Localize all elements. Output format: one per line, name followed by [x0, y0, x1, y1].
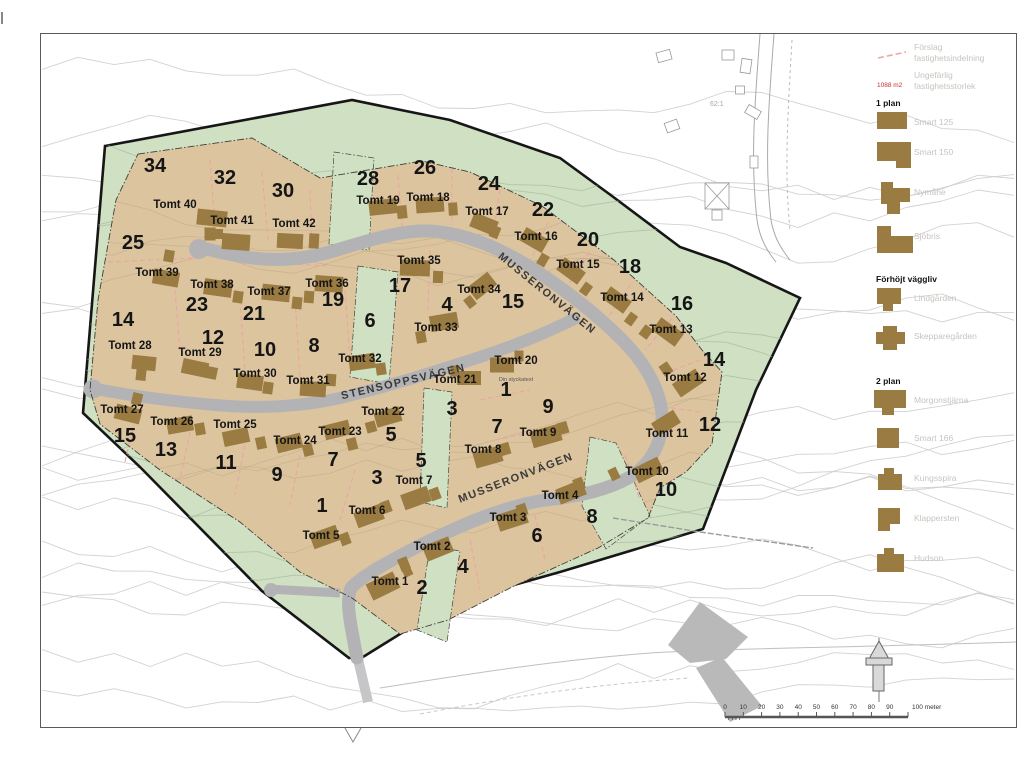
plot-label: Tomt 18 [406, 192, 450, 204]
plot-label: Tomt 19 [356, 195, 399, 207]
legend-label: Hudson [914, 553, 944, 563]
block-number: 4 [457, 556, 469, 578]
house [396, 205, 407, 219]
plot-label: Tomt 40 [153, 199, 196, 211]
plot-label: Tomt 28 [108, 340, 152, 352]
block-number: 9 [542, 396, 553, 418]
house [232, 290, 244, 303]
legend-label: Morgonstjärna [914, 395, 969, 405]
block-number: 7 [327, 449, 338, 471]
existing-building [750, 156, 758, 168]
block-number: 19 [322, 289, 344, 311]
existing-building-x [705, 183, 729, 209]
block-number: 5 [415, 450, 426, 472]
house [163, 249, 175, 263]
plot-label: Tomt 3 [490, 512, 527, 524]
block-number: 20 [577, 229, 599, 251]
plot-label: Tomt 10 [625, 466, 668, 478]
plot-label: Tomt 31 [286, 375, 330, 387]
scale-tick-label: 10 [740, 704, 748, 711]
legend-label: fastighetsstorlek [914, 81, 976, 91]
plot-label: Tomt 13 [649, 324, 692, 336]
house [277, 233, 304, 249]
plot-label: Tomt 30 [233, 368, 276, 380]
plot-label: Tomt 6 [349, 505, 386, 517]
block-number: 5 [385, 424, 396, 446]
block-number: 18 [619, 256, 641, 278]
plot-label: Tomt 26 [150, 416, 193, 428]
block-number: 8 [586, 506, 597, 528]
house [304, 291, 315, 304]
road-stub-west [268, 589, 340, 593]
plot-label: Tomt 36 [305, 278, 348, 290]
block-number: 16 [671, 293, 693, 315]
existing-building [740, 58, 752, 73]
scale-tick-label: 90 [886, 704, 894, 711]
plot-label: Tomt 8 [465, 444, 502, 456]
scale-tick-label: 70 [849, 704, 857, 711]
legend-house-symbol [877, 112, 907, 129]
block-number: 12 [202, 327, 224, 349]
plot-label: Tomt 37 [247, 286, 290, 298]
legend-area-text: 1088 m2 [877, 82, 903, 89]
block-number: 12 [699, 414, 721, 436]
site-plan-drawing: 3432302826242220181625232119171514121086… [0, 0, 1024, 768]
scale-tick-label: 60 [831, 704, 839, 711]
block-number: 3 [446, 398, 457, 420]
plot-label: Tomt 38 [190, 279, 234, 291]
plot-label: Tomt 32 [338, 353, 381, 365]
plot-label: Tomt 22 [361, 406, 404, 418]
plot-label: Tomt 29 [178, 347, 221, 359]
block-number: 8 [308, 335, 319, 357]
house [309, 233, 320, 249]
plot-label: Tomt 23 [318, 426, 361, 438]
house [448, 202, 458, 216]
block-number: 15 [114, 425, 136, 447]
house [135, 369, 146, 381]
block-number: 34 [144, 155, 167, 177]
block-number: 23 [186, 294, 208, 316]
block-number: 1 [316, 495, 327, 517]
legend-section-heading: 1 plan [876, 98, 901, 108]
legend-section-heading: 2 plan [876, 376, 901, 386]
block-number: 21 [243, 303, 265, 325]
house [262, 381, 274, 394]
block-number: 32 [214, 167, 236, 189]
legend-label: Smart 150 [914, 147, 953, 157]
block-number: 10 [254, 339, 276, 361]
house [194, 422, 206, 436]
block-number: 13 [155, 439, 177, 461]
existing-building [712, 210, 722, 220]
block-number: 9 [271, 464, 282, 486]
legend-label: Ungefärlig [914, 70, 953, 80]
legend-label: fastighetsindelning [914, 53, 985, 63]
plot-label: Tomt 12 [663, 372, 706, 384]
house [131, 355, 156, 371]
legend-label: Klappersten [914, 513, 960, 523]
plot-label: Tomt 14 [600, 292, 644, 304]
block-number: 15 [502, 291, 524, 313]
existing-building [736, 86, 745, 94]
house [291, 297, 302, 310]
plot-label: Tomt 7 [396, 475, 433, 487]
block-number: 6 [531, 525, 542, 547]
block-number: 4 [441, 294, 453, 316]
plot-label: Tomt 41 [210, 215, 254, 227]
scale-tick-label: 0 [723, 704, 727, 711]
plot-label: Tomt 17 [465, 206, 508, 218]
plot-label: Tomt 42 [272, 218, 315, 230]
house [205, 228, 216, 241]
plot-label: Tomt 9 [520, 427, 557, 439]
block-number: 22 [532, 199, 554, 221]
plot-label: Tomt 24 [273, 435, 317, 447]
block-number: 17 [389, 275, 411, 297]
plot-label: Tomt 39 [135, 267, 178, 279]
scale-tick-label: 50 [813, 704, 821, 711]
scale-end-label: 100 meter [912, 704, 942, 711]
scale-tick-label: 20 [758, 704, 766, 711]
plot-label: Tomt 16 [514, 231, 557, 243]
legend-label: Sjöbris [914, 231, 940, 241]
block-number: 10 [655, 479, 677, 501]
legend-label: Nymåne [914, 187, 946, 197]
legend-label: Smart 125 [914, 117, 953, 127]
plot-label: Tomt 35 [397, 255, 441, 267]
existing-building [722, 50, 734, 60]
legend-label: Lindgården [914, 293, 957, 303]
site-plan-map: 3432302826242220181625232119171514121086… [0, 0, 1024, 768]
scale-tick-label: 40 [795, 704, 803, 711]
legend-label: Kungsspira [914, 473, 957, 483]
block-number: 2 [416, 577, 427, 599]
legend-section-heading: Förhöjt väggliv [876, 274, 937, 284]
block-number: 14 [703, 349, 726, 371]
plot-label: Tomt 25 [213, 419, 257, 431]
legend-house-symbol [877, 428, 899, 448]
legend-label: Smart 166 [914, 433, 953, 443]
block-number: 26 [414, 157, 436, 179]
scale-tick-label: 30 [776, 704, 784, 711]
block-number: 6 [364, 310, 375, 332]
plot-annotation: Din styckatext [499, 377, 534, 383]
house [433, 271, 443, 283]
block-number: 14 [112, 309, 135, 331]
plot-label: Tomt 27 [100, 404, 143, 416]
plot-label: Tomt 5 [303, 530, 340, 542]
plot-label: Tomt 34 [457, 284, 501, 296]
house [221, 233, 250, 251]
plot-label: Tomt 15 [556, 259, 600, 271]
plot-label: Tomt 33 [414, 322, 457, 334]
legend-label: Skepparegården [914, 331, 977, 341]
block-number: 24 [478, 173, 501, 195]
block-number: 3 [371, 467, 382, 489]
block-number: 7 [491, 416, 502, 438]
plot-label: Tomt 4 [542, 490, 579, 502]
plot-label: Tomt 20 [494, 355, 537, 367]
plot-label: Tomt 11 [646, 428, 689, 440]
block-number: 28 [357, 168, 379, 190]
parcel-id-label: 62:1 [710, 101, 724, 108]
plot-label: Tomt 2 [414, 541, 451, 553]
scale-tick-label: 80 [868, 704, 876, 711]
plot-label: Tomt 1 [372, 576, 409, 588]
block-number: 25 [122, 232, 144, 254]
block-number: 30 [272, 180, 294, 202]
legend-label: Förslag [914, 42, 943, 52]
block-number: 11 [215, 452, 236, 474]
